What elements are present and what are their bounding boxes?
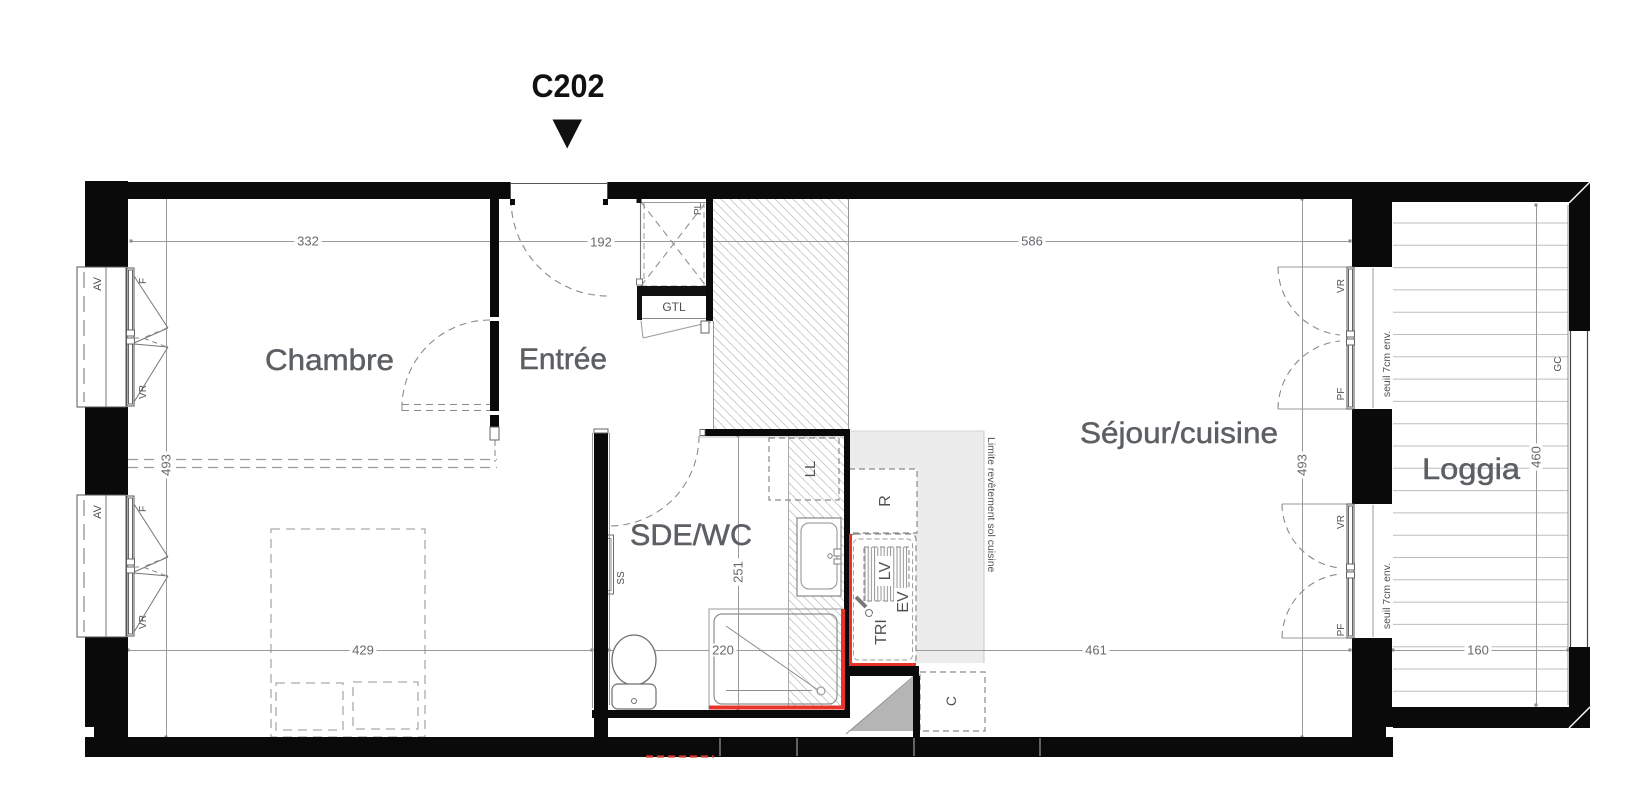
svg-text:SDE/WC: SDE/WC (630, 519, 752, 552)
svg-text:VR: VR (138, 615, 149, 629)
svg-text:seuil 7cm env.: seuil 7cm env. (1381, 563, 1393, 629)
svg-text:seuil 7cm env.: seuil 7cm env. (1381, 331, 1393, 397)
svg-text:LL: LL (802, 461, 819, 478)
svg-text:GTL: GTL (662, 300, 686, 314)
svg-text:586: 586 (1021, 234, 1043, 249)
svg-text:F: F (138, 506, 149, 512)
svg-text:251: 251 (731, 561, 746, 583)
svg-text:VR: VR (1336, 515, 1347, 529)
svg-text:EV: EV (895, 591, 912, 613)
svg-text:460: 460 (1529, 446, 1544, 468)
svg-text:SS: SS (616, 571, 627, 585)
svg-text:493: 493 (159, 454, 174, 476)
svg-text:160: 160 (1467, 643, 1489, 658)
svg-text:493: 493 (1295, 454, 1310, 476)
svg-text:461: 461 (1085, 643, 1107, 658)
svg-text:AV: AV (92, 276, 104, 291)
svg-text:Séjour/cuisine: Séjour/cuisine (1080, 417, 1278, 450)
svg-text:PL: PL (693, 202, 704, 215)
svg-text:Loggia: Loggia (1422, 453, 1520, 486)
svg-text:332: 332 (297, 234, 319, 249)
svg-text:GC: GC (1553, 357, 1564, 372)
svg-text:F: F (138, 278, 149, 284)
svg-text:220: 220 (712, 643, 734, 658)
svg-text:Chambre: Chambre (265, 344, 394, 377)
svg-text:TRI: TRI (873, 619, 890, 645)
svg-text:VR: VR (138, 385, 149, 399)
svg-text:VR: VR (1336, 279, 1347, 293)
svg-text:Limite revêtement sol cuisine: Limite revêtement sol cuisine (985, 437, 997, 573)
svg-text:Entrée: Entrée (519, 343, 607, 376)
svg-text:R: R (877, 495, 894, 507)
svg-text:C202: C202 (532, 68, 605, 104)
svg-text:AV: AV (92, 504, 104, 519)
svg-text:LV: LV (877, 561, 894, 580)
svg-text:429: 429 (352, 643, 374, 658)
svg-text:PF: PF (1336, 388, 1347, 401)
svg-text:PF: PF (1336, 624, 1347, 637)
svg-text:192: 192 (590, 235, 612, 250)
svg-text:C: C (943, 696, 959, 706)
